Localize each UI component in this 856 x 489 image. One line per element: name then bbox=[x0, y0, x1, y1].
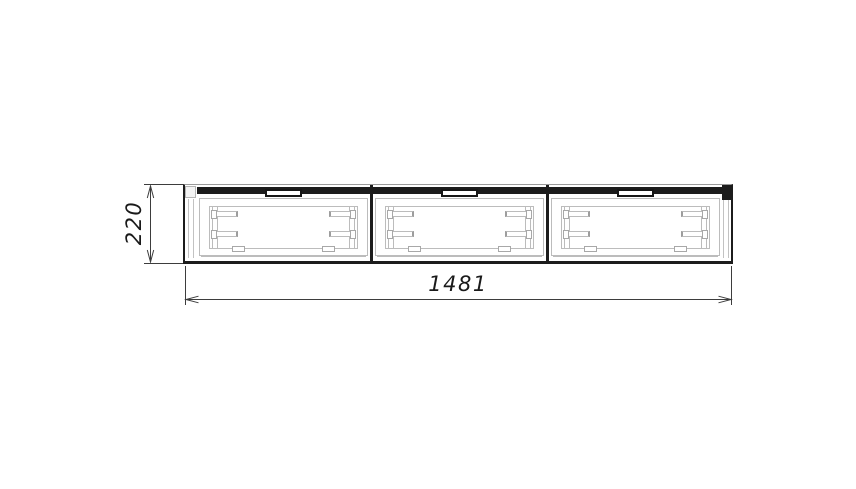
slide-bracket bbox=[214, 231, 238, 237]
right-side-panel-line bbox=[723, 200, 729, 258]
slide-mount bbox=[526, 230, 532, 239]
drawer-section bbox=[370, 185, 546, 261]
bottom-clip bbox=[674, 246, 687, 252]
drawing-canvas: 1481 220 bbox=[0, 0, 856, 489]
slide-mount bbox=[526, 210, 532, 219]
slide-mount bbox=[563, 210, 569, 219]
bottom-clip bbox=[584, 246, 597, 252]
left-side-panel-line bbox=[188, 199, 194, 258]
slide-bracket bbox=[390, 211, 414, 217]
slide-mount bbox=[563, 230, 569, 239]
drawer-handle bbox=[441, 189, 478, 197]
left-side-panel-edge bbox=[185, 186, 196, 198]
drawer-section bbox=[197, 185, 370, 261]
drawer-section bbox=[546, 185, 722, 261]
slide-mount bbox=[387, 230, 393, 239]
bottom-clip bbox=[232, 246, 245, 252]
drawer-handle bbox=[265, 189, 302, 197]
drawer-bottom-edge bbox=[377, 256, 542, 257]
slide-mount bbox=[702, 210, 708, 219]
arrow-down-icon bbox=[147, 250, 153, 262]
drawer-sections bbox=[197, 185, 722, 261]
slide-bracket bbox=[390, 231, 414, 237]
slide-mount bbox=[702, 230, 708, 239]
cabinet-front-view bbox=[183, 184, 733, 264]
width-dimension-label: 1481 bbox=[428, 272, 487, 296]
right-side-panel-edge bbox=[722, 185, 731, 200]
drawer-bottom-edge bbox=[201, 256, 366, 257]
slide-mount bbox=[387, 210, 393, 219]
slide-bracket bbox=[566, 231, 590, 237]
slide-mount bbox=[350, 230, 356, 239]
arrow-left-icon bbox=[186, 296, 199, 303]
slide-bracket bbox=[214, 211, 238, 217]
slide-bracket bbox=[566, 211, 590, 217]
bottom-clip bbox=[322, 246, 335, 252]
bottom-clip bbox=[408, 246, 421, 252]
slide-mount bbox=[350, 210, 356, 219]
height-dimension-label: 220 bbox=[122, 201, 146, 246]
bottom-clip bbox=[498, 246, 511, 252]
slide-mount bbox=[211, 230, 217, 239]
drawer-handle bbox=[617, 189, 654, 197]
arrow-right-icon bbox=[719, 296, 732, 303]
slide-mount bbox=[211, 210, 217, 219]
arrow-up-icon bbox=[147, 186, 153, 198]
drawer-bottom-edge bbox=[553, 256, 718, 257]
